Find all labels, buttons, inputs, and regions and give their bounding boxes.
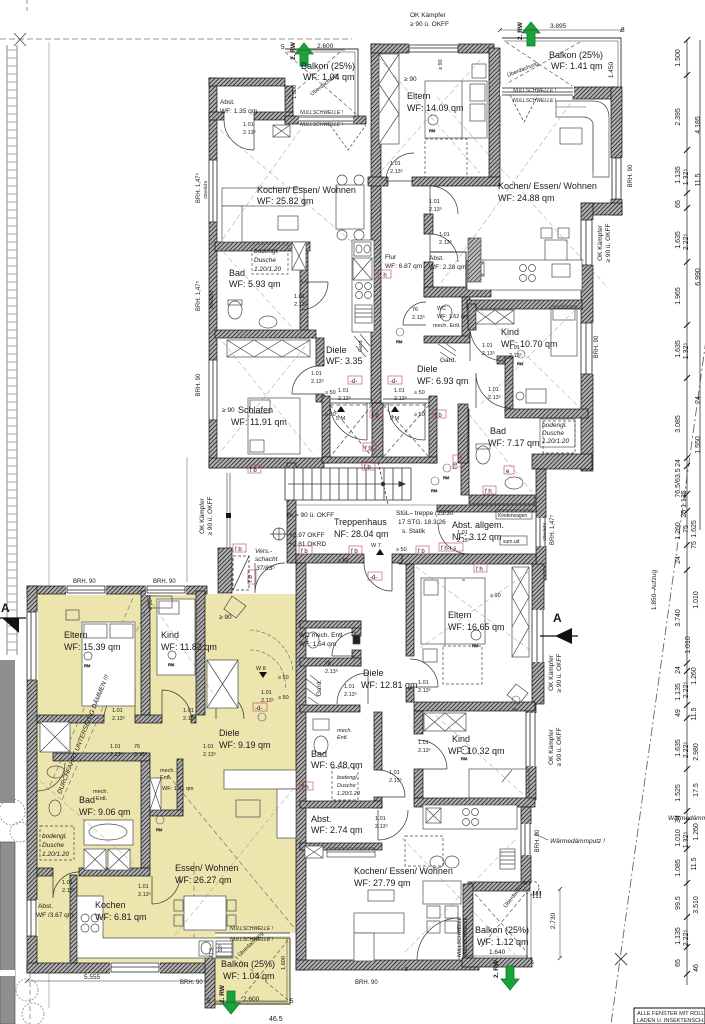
svg-text:17.5: 17.5 bbox=[693, 783, 700, 797]
svg-text:24: 24 bbox=[675, 556, 682, 564]
svg-text:2.13⁵: 2.13⁵ bbox=[418, 687, 431, 694]
svg-text:BRH. 90: BRH. 90 bbox=[594, 335, 600, 358]
svg-text:1.01: 1.01 bbox=[457, 530, 468, 536]
svg-text:WF: 2.74 qm: WF: 2.74 qm bbox=[311, 825, 363, 835]
svg-text:WF: 1.04 qm: WF: 1.04 qm bbox=[303, 72, 355, 82]
svg-text:f h: f h bbox=[476, 567, 483, 573]
svg-text:2.13⁵: 2.13⁵ bbox=[418, 747, 431, 754]
svg-text:Entl.: Entl. bbox=[337, 735, 348, 741]
svg-text:WF: 16.65 qm: WF: 16.65 qm bbox=[448, 622, 505, 632]
svg-text:WF: 6.48 qm: WF: 6.48 qm bbox=[311, 760, 363, 770]
svg-text:WF: 7.17 qm: WF: 7.17 qm bbox=[488, 438, 540, 448]
svg-text:2.13⁵: 2.13⁵ bbox=[439, 239, 452, 246]
svg-text:Br.> 90 ü. OKFF: Br.> 90 ü. OKFF bbox=[287, 512, 334, 519]
svg-text:Essen/ Wohnen: Essen/ Wohnen bbox=[175, 863, 238, 873]
svg-text:mech.: mech. bbox=[160, 768, 175, 774]
svg-text:RM: RM bbox=[168, 662, 174, 667]
svg-text:≥ 90: ≥ 90 bbox=[219, 614, 232, 621]
svg-text:5: 5 bbox=[531, 960, 534, 966]
svg-text:BRH. 90: BRH. 90 bbox=[535, 829, 541, 852]
svg-text:1.01: 1.01 bbox=[294, 294, 305, 300]
svg-text:≥ 50: ≥ 50 bbox=[325, 412, 336, 418]
svg-text:5: 5 bbox=[621, 27, 625, 34]
svg-text:24: 24 bbox=[675, 459, 682, 467]
svg-text:-d-: -d- bbox=[370, 575, 377, 581]
svg-text:WF: 6.93 qm: WF: 6.93 qm bbox=[417, 376, 469, 386]
svg-text:W 8: W 8 bbox=[256, 666, 266, 672]
svg-text:2.13⁵: 2.13⁵ bbox=[390, 168, 403, 175]
svg-text:Wärmedämmputz !: Wärmedämmputz ! bbox=[550, 838, 605, 845]
svg-text:BRH. 90: BRH. 90 bbox=[628, 164, 634, 187]
svg-text:NULLSCHWELLE !: NULLSCHWELLE ! bbox=[230, 926, 274, 932]
svg-text:Oberlicht: Oberlicht bbox=[542, 522, 547, 541]
svg-text:1.010: 1.010 bbox=[685, 636, 692, 654]
svg-text:1.01: 1.01 bbox=[488, 387, 499, 393]
svg-text:OK Kämpfer: OK Kämpfer bbox=[199, 497, 206, 534]
svg-text:1.20/1.20: 1.20/1.20 bbox=[337, 791, 361, 797]
svg-text:NULLSCHWELLE: NULLSCHWELLE bbox=[463, 916, 469, 957]
svg-text:1.01: 1.01 bbox=[390, 161, 401, 167]
svg-text:2. RW: 2. RW bbox=[290, 41, 297, 60]
svg-text:Dusche: Dusche bbox=[542, 430, 564, 437]
svg-text:Diele: Diele bbox=[219, 728, 240, 738]
svg-text:WC mech. Entl: WC mech. Entl bbox=[299, 632, 343, 639]
svg-text:RM: RM bbox=[431, 488, 437, 493]
svg-text:≥ 90: ≥ 90 bbox=[404, 76, 417, 83]
svg-text:4.185: 4.185 bbox=[695, 116, 702, 134]
svg-text:BRH. 90: BRH. 90 bbox=[73, 579, 96, 585]
svg-text:RM: RM bbox=[429, 128, 435, 133]
svg-text:76: 76 bbox=[412, 307, 418, 313]
svg-text:1.010: 1.010 bbox=[693, 591, 700, 609]
svg-text:Abst.: Abst. bbox=[38, 903, 53, 910]
svg-text:WF: 15.39 qm: WF: 15.39 qm bbox=[64, 642, 121, 652]
svg-text:24: 24 bbox=[675, 666, 682, 674]
svg-text:f b: f b bbox=[418, 549, 425, 555]
svg-text:mech.: mech. bbox=[93, 789, 108, 795]
svg-text:NULLSCHWELLE !: NULLSCHWELLE ! bbox=[513, 88, 557, 94]
svg-text:≥ 50: ≥ 50 bbox=[414, 390, 425, 396]
svg-text:1.32⁵: 1.32⁵ bbox=[683, 343, 690, 360]
svg-text:Abst.: Abst. bbox=[220, 99, 235, 106]
svg-text:Kind: Kind bbox=[501, 327, 519, 337]
svg-text:1.01: 1.01 bbox=[375, 816, 386, 822]
svg-text:≥ 90 ü. OKFF: ≥ 90 ü. OKFF bbox=[410, 21, 449, 28]
svg-text:WF: 6.81 qm: WF: 6.81 qm bbox=[95, 912, 147, 922]
svg-text:RM: RM bbox=[156, 827, 162, 832]
svg-text:1.01: 1.01 bbox=[394, 388, 405, 394]
svg-text:bodengl.: bodengl. bbox=[542, 422, 567, 429]
svg-text:2.13⁵: 2.13⁵ bbox=[338, 395, 351, 402]
svg-text:3.740: 3.740 bbox=[675, 609, 682, 627]
svg-text:f b: f b bbox=[301, 549, 308, 555]
svg-text:WF: 1.62 qm: WF: 1.62 qm bbox=[437, 314, 469, 320]
svg-text:Schlafen: Schlafen bbox=[238, 405, 273, 415]
svg-text:-d-: -d- bbox=[390, 379, 397, 385]
svg-text:BRH. 90: BRH. 90 bbox=[355, 980, 378, 986]
svg-text:1.260: 1.260 bbox=[691, 667, 698, 685]
svg-text:17 STG. 18.3/26: 17 STG. 18.3/26 bbox=[398, 519, 446, 526]
svg-text:2. RW: 2. RW bbox=[493, 959, 500, 978]
svg-text:1.085: 1.085 bbox=[675, 859, 682, 877]
svg-text:WF: 9.19 qm: WF: 9.19 qm bbox=[219, 740, 271, 750]
svg-text:Balkon (25%): Balkon (25%) bbox=[549, 50, 603, 60]
svg-text:2.13⁵: 2.13⁵ bbox=[344, 691, 357, 698]
svg-text:1.635: 1.635 bbox=[675, 340, 682, 358]
svg-text:RM: RM bbox=[472, 643, 478, 648]
svg-text:≥ 90 ü. OKFF: ≥ 90 ü. OKFF bbox=[556, 653, 563, 692]
svg-text:≥ 90 ü. OKFF: ≥ 90 ü. OKFF bbox=[556, 727, 563, 766]
svg-text:WF: 25.82 qm: WF: 25.82 qm bbox=[257, 196, 314, 206]
svg-text:1.01: 1.01 bbox=[138, 884, 149, 890]
svg-text:Kochen/ Essen/ Wohnen: Kochen/ Essen/ Wohnen bbox=[257, 185, 356, 195]
svg-text:65: 65 bbox=[675, 200, 682, 208]
svg-text:2.13⁵: 2.13⁵ bbox=[325, 668, 338, 675]
svg-text:1.625: 1.625 bbox=[691, 520, 698, 538]
svg-text:WF: 27.79 qm: WF: 27.79 qm bbox=[354, 878, 411, 888]
svg-text:≥ 90 ü. OKFF: ≥ 90 ü. OKFF bbox=[605, 223, 612, 262]
svg-text:sum.ud: sum.ud bbox=[503, 539, 520, 545]
svg-text:75: 75 bbox=[683, 525, 690, 533]
svg-text:46: 46 bbox=[693, 964, 700, 972]
svg-text:NULLSCHWELLE !: NULLSCHWELLE ! bbox=[513, 98, 557, 104]
svg-text:bodengl.: bodengl. bbox=[42, 833, 67, 840]
svg-text:Diele: Diele bbox=[363, 668, 384, 678]
svg-text:f h: f h bbox=[380, 273, 387, 279]
svg-text:ALLE FENSTER MIT ROLL: ALLE FENSTER MIT ROLL bbox=[637, 1011, 704, 1017]
svg-text:Kochen/ Essen/ Wohnen: Kochen/ Essen/ Wohnen bbox=[354, 866, 453, 876]
svg-text:1.635: 1.635 bbox=[675, 739, 682, 757]
svg-text:2.13⁵: 2.13⁵ bbox=[311, 378, 324, 385]
svg-text:1.01: 1.01 bbox=[418, 740, 429, 746]
svg-text:WF: 5.93 qm: WF: 5.93 qm bbox=[229, 279, 281, 289]
svg-text:2.13⁵: 2.13⁵ bbox=[482, 350, 495, 357]
svg-text:2.13⁵: 2.13⁵ bbox=[62, 887, 75, 894]
svg-text:Eltern: Eltern bbox=[448, 610, 472, 620]
svg-text:Treppenhaus: Treppenhaus bbox=[334, 517, 387, 527]
svg-text:!!!: !!! bbox=[532, 890, 542, 901]
svg-text:Oberlicht: Oberlicht bbox=[209, 290, 214, 309]
svg-text:1.600: 1.600 bbox=[292, 85, 298, 99]
svg-text:OK Kämpfer: OK Kämpfer bbox=[410, 12, 447, 19]
svg-text:StüL– treppe (25/30: StüL– treppe (25/30 bbox=[396, 510, 454, 517]
svg-text:1.135: 1.135 bbox=[675, 927, 682, 945]
svg-text:OK Kämpfer: OK Kämpfer bbox=[548, 728, 555, 765]
svg-text:WF: 12.81 qm: WF: 12.81 qm bbox=[361, 680, 418, 690]
svg-text:≥ 50: ≥ 50 bbox=[278, 675, 289, 681]
svg-text:Kochen: Kochen bbox=[95, 900, 126, 910]
svg-text:3.510: 3.510 bbox=[693, 896, 700, 914]
svg-text:Abst.: Abst. bbox=[429, 255, 444, 262]
svg-text:1.20/1.20: 1.20/1.20 bbox=[542, 438, 569, 445]
svg-text:Dusche: Dusche bbox=[254, 257, 276, 264]
svg-text:NF: 28.04 qm: NF: 28.04 qm bbox=[334, 529, 389, 539]
svg-text:WC: WC bbox=[437, 306, 446, 312]
svg-text:1.525: 1.525 bbox=[675, 784, 682, 802]
svg-text:Oberlicht: Oberlicht bbox=[203, 180, 208, 199]
svg-text:2.13⁵: 2.13⁵ bbox=[394, 395, 407, 402]
svg-text:2.22⁵: 2.22⁵ bbox=[683, 682, 690, 699]
svg-text:2.13⁵: 2.13⁵ bbox=[183, 715, 196, 722]
svg-text:49: 49 bbox=[675, 709, 682, 717]
svg-text:Bad: Bad bbox=[311, 749, 327, 759]
svg-text:-d-: -d- bbox=[255, 706, 262, 712]
svg-text:65: 65 bbox=[675, 959, 682, 967]
svg-text:OK Kämpfer: OK Kämpfer bbox=[548, 654, 555, 691]
svg-text:f b: f b bbox=[250, 468, 257, 474]
svg-text:1.01: 1.01 bbox=[243, 122, 254, 128]
svg-text:1.500: 1.500 bbox=[675, 49, 682, 67]
svg-text:RM: RM bbox=[517, 361, 523, 366]
svg-text:1.32⁵: 1.32⁵ bbox=[683, 169, 690, 186]
svg-text:NULLSCHWELLE !: NULLSCHWELLE ! bbox=[300, 122, 344, 128]
svg-text:5: 5 bbox=[290, 998, 294, 1005]
svg-text:≥ 90: ≥ 90 bbox=[438, 59, 444, 70]
svg-text:2.13⁵: 2.13⁵ bbox=[134, 751, 147, 758]
svg-text:2.22⁵: 2.22⁵ bbox=[683, 742, 690, 759]
svg-text:≥ 50: ≥ 50 bbox=[338, 558, 349, 564]
svg-text:-d-: -d- bbox=[350, 379, 357, 385]
svg-text:6.990: 6.990 bbox=[695, 268, 702, 286]
svg-text:2.13⁵: 2.13⁵ bbox=[112, 715, 125, 722]
svg-text:9 M: 9 M bbox=[390, 416, 400, 422]
svg-text:≈: ≈ bbox=[462, 578, 465, 584]
svg-text:A: A bbox=[553, 611, 562, 625]
svg-text:1.01: 1.01 bbox=[482, 343, 493, 349]
svg-text:f b: f b bbox=[372, 413, 379, 419]
svg-text:Diele: Diele bbox=[326, 345, 347, 355]
svg-text:Abst.: Abst. bbox=[311, 814, 332, 824]
svg-text:2.13⁵: 2.13⁵ bbox=[412, 314, 425, 321]
svg-text:Balkon (25%): Balkon (25%) bbox=[475, 925, 529, 935]
svg-text:Entl.: Entl. bbox=[160, 775, 171, 781]
svg-text:Dusche: Dusche bbox=[42, 842, 64, 849]
svg-text:25 1.135: 25 1.135 bbox=[681, 490, 688, 517]
svg-text:5 M: 5 M bbox=[336, 416, 346, 422]
svg-text:11.5: 11.5 bbox=[691, 857, 698, 870]
svg-text:BRH. 90: BRH. 90 bbox=[153, 579, 176, 585]
svg-text:2.13⁵: 2.13⁵ bbox=[429, 206, 442, 213]
svg-text:5.555: 5.555 bbox=[84, 974, 101, 981]
svg-text:1.550: 1.550 bbox=[695, 436, 702, 454]
svg-text:WF: 1.04 qm: WF: 1.04 qm bbox=[223, 971, 275, 981]
svg-text:W 7: W 7 bbox=[371, 543, 381, 549]
svg-text:11.5: 11.5 bbox=[691, 707, 698, 720]
svg-text:76: 76 bbox=[134, 744, 140, 750]
svg-text:1.135: 1.135 bbox=[675, 166, 682, 184]
svg-text:f h-r s: f h-r s bbox=[441, 546, 456, 552]
svg-text:f b: f b bbox=[351, 549, 358, 555]
svg-text:Kind: Kind bbox=[452, 734, 470, 744]
svg-text:Eltern: Eltern bbox=[407, 91, 431, 101]
svg-text:2.13⁵: 2.13⁵ bbox=[110, 751, 123, 758]
svg-text:+2.81 OKRD: +2.81 OKRD bbox=[289, 541, 326, 548]
svg-text:1.01: 1.01 bbox=[418, 680, 429, 686]
svg-text:≥ 90: ≥ 90 bbox=[222, 407, 235, 414]
svg-text:2. RW: 2. RW bbox=[219, 984, 226, 1003]
svg-text:Bad: Bad bbox=[79, 795, 95, 805]
svg-text:Diele: Diele bbox=[417, 364, 438, 374]
svg-text:WF: 1.41 qm: WF: 1.41 qm bbox=[551, 61, 603, 71]
svg-text:2.13⁵: 2.13⁵ bbox=[389, 777, 402, 784]
svg-text:f b: f b bbox=[248, 575, 254, 582]
svg-text:Balkon (25%): Balkon (25%) bbox=[301, 61, 355, 71]
svg-text:Gard.: Gard. bbox=[358, 339, 364, 352]
svg-text:BRH. 1,47⁵: BRH. 1,47⁵ bbox=[195, 172, 202, 203]
svg-text:5: 5 bbox=[405, 967, 408, 973]
svg-text:1.635: 1.635 bbox=[675, 231, 682, 249]
svg-text:1.260: 1.260 bbox=[675, 522, 682, 540]
svg-text:1.01: 1.01 bbox=[338, 388, 349, 394]
svg-text:f b: f b bbox=[365, 446, 372, 452]
svg-text:f h: f h bbox=[302, 785, 309, 791]
svg-text:WF: 10.32 qm: WF: 10.32 qm bbox=[448, 746, 505, 756]
svg-text:5: 5 bbox=[281, 44, 285, 51]
svg-text:WF: 1.54 qm: WF: 1.54 qm bbox=[299, 641, 336, 648]
svg-text:≥ 50: ≥ 50 bbox=[325, 390, 336, 396]
svg-text:WF /3.67 qm: WF /3.67 qm bbox=[36, 912, 73, 919]
svg-text:1.640: 1.640 bbox=[489, 949, 506, 956]
svg-text:NULLSCHWELLE !: NULLSCHWELLE ! bbox=[300, 110, 344, 116]
svg-text:2.13⁵: 2.13⁵ bbox=[203, 751, 216, 758]
svg-text:1.135: 1.135 bbox=[675, 683, 682, 701]
svg-text:RM: RM bbox=[443, 475, 449, 480]
svg-text:2.13⁵: 2.13⁵ bbox=[138, 891, 151, 898]
svg-text:WF: 14.09 qm: WF: 14.09 qm bbox=[407, 103, 464, 113]
svg-text:Flur: Flur bbox=[385, 254, 397, 261]
svg-text:1.20/1.20: 1.20/1.20 bbox=[254, 266, 281, 273]
svg-text:2.13⁵: 2.13⁵ bbox=[243, 129, 256, 136]
svg-text:71.5: 71.5 bbox=[209, 948, 215, 959]
svg-text:1.01: 1.01 bbox=[110, 744, 121, 750]
svg-text:46.5: 46.5 bbox=[269, 1016, 283, 1023]
svg-text:1.01: 1.01 bbox=[429, 199, 440, 205]
svg-text:2.22⁵: 2.22⁵ bbox=[683, 930, 690, 947]
svg-text:1.20/1.20: 1.20/1.20 bbox=[42, 851, 69, 858]
svg-text:≥ 90: ≥ 90 bbox=[490, 593, 501, 599]
svg-text:≥ 50: ≥ 50 bbox=[414, 412, 425, 418]
svg-text:99.5: 99.5 bbox=[675, 896, 682, 910]
svg-text:Gard.: Gard. bbox=[440, 357, 456, 364]
svg-text:Abst. allgem.: Abst. allgem. bbox=[452, 520, 504, 530]
svg-text:37/83⁵: 37/83⁵ bbox=[256, 565, 275, 572]
svg-text:Wärmedämmputz !: Wärmedämmputz ! bbox=[668, 815, 705, 822]
svg-text:WF: 1.41 qm: WF: 1.41 qm bbox=[162, 786, 194, 792]
svg-text:schacht: schacht bbox=[255, 556, 279, 563]
svg-text:WF: 11.82 qm: WF: 11.82 qm bbox=[161, 642, 217, 652]
svg-text:Bad: Bad bbox=[490, 426, 506, 436]
svg-text:Balkon (25%): Balkon (25%) bbox=[221, 959, 275, 969]
svg-text:bodengl.: bodengl. bbox=[254, 248, 279, 255]
svg-text:1.965: 1.965 bbox=[675, 287, 682, 305]
svg-text:RM: RM bbox=[396, 339, 402, 344]
svg-text:≥ 50: ≥ 50 bbox=[278, 695, 289, 701]
svg-text:BRH. 90: BRH. 90 bbox=[196, 373, 202, 396]
svg-text:RM: RM bbox=[461, 756, 467, 761]
svg-text:≥ 90 ü. OKFF: ≥ 90 ü. OKFF bbox=[207, 496, 214, 535]
svg-text:f b: f b bbox=[453, 462, 459, 469]
svg-text:bodengl.: bodengl. bbox=[337, 775, 358, 781]
svg-text:WF: 6.87 qm: WF: 6.87 qm bbox=[385, 263, 422, 270]
svg-text:5: 5 bbox=[207, 998, 211, 1005]
svg-text:s. Statik: s. Statik bbox=[402, 528, 426, 535]
svg-text:WF: 2.28 qm: WF: 2.28 qm bbox=[429, 264, 466, 271]
svg-text:LADEN U. INSEKTENSCH.: LADEN U. INSEKTENSCH. bbox=[637, 1018, 705, 1024]
svg-text:2.980: 2.980 bbox=[693, 743, 700, 761]
svg-text:1.01: 1.01 bbox=[261, 690, 272, 696]
svg-text:1.01: 1.01 bbox=[389, 770, 400, 776]
svg-text:Entl.: Entl. bbox=[96, 796, 107, 802]
svg-text:f h: f h bbox=[485, 489, 492, 495]
svg-text:32⁵: 32⁵ bbox=[217, 944, 224, 952]
svg-text:f b: f b bbox=[235, 547, 242, 553]
svg-text:RM: RM bbox=[512, 707, 518, 712]
svg-text:1.32⁵: 1.32⁵ bbox=[683, 832, 690, 849]
svg-text:WF: 11.91 qm: WF: 11.91 qm bbox=[231, 417, 287, 427]
svg-text:≥ 50: ≥ 50 bbox=[396, 547, 407, 553]
svg-text:2.395: 2.395 bbox=[675, 108, 682, 126]
svg-text:f b: f b bbox=[364, 465, 371, 471]
svg-text:WF: 24.88 qm: WF: 24.88 qm bbox=[498, 193, 555, 203]
svg-text:3.895: 3.895 bbox=[550, 23, 567, 30]
svg-text:1.01: 1.01 bbox=[439, 232, 450, 238]
svg-text:1.260: 1.260 bbox=[693, 823, 700, 841]
svg-text:2.730: 2.730 bbox=[550, 912, 557, 929]
svg-text:1.450: 1.450 bbox=[608, 61, 615, 78]
svg-text:2.13⁵: 2.13⁵ bbox=[375, 823, 388, 830]
svg-text:Kochen/ Essen/ Wohnen: Kochen/ Essen/ Wohnen bbox=[498, 181, 597, 191]
svg-text:1.850–Aufzug: 1.850–Aufzug bbox=[651, 570, 658, 611]
svg-text:2.22⁵: 2.22⁵ bbox=[683, 234, 690, 251]
svg-text:WF: 3.35: WF: 3.35 bbox=[326, 356, 363, 366]
svg-text:1.01: 1.01 bbox=[62, 880, 73, 886]
svg-text:1.01: 1.01 bbox=[344, 684, 355, 690]
svg-text:BRH. 1,47⁵: BRH. 1,47⁵ bbox=[549, 514, 556, 545]
svg-text:1.01: 1.01 bbox=[509, 345, 520, 351]
svg-text:2.13⁵: 2.13⁵ bbox=[294, 301, 307, 308]
svg-text:2. RW: 2. RW bbox=[517, 21, 524, 40]
svg-text:RM: RM bbox=[84, 663, 90, 668]
svg-text:1.01: 1.01 bbox=[311, 371, 322, 377]
svg-text:1.010: 1.010 bbox=[675, 829, 682, 847]
svg-text:+2.97 OKFF: +2.97 OKFF bbox=[289, 532, 325, 539]
svg-text:mech. Entl.: mech. Entl. bbox=[433, 323, 461, 329]
svg-text:1.01: 1.01 bbox=[183, 708, 194, 714]
svg-text:1.01: 1.01 bbox=[112, 708, 123, 714]
svg-text:mech.: mech. bbox=[337, 728, 352, 734]
svg-text:75: 75 bbox=[691, 541, 698, 549]
svg-text:WF: 1.35 qm: WF: 1.35 qm bbox=[220, 108, 257, 115]
svg-text:76: 76 bbox=[325, 661, 331, 667]
svg-text:24: 24 bbox=[695, 396, 702, 404]
svg-text:f b: f b bbox=[435, 413, 442, 419]
svg-text:11.5: 11.5 bbox=[695, 173, 702, 186]
svg-text:BRH. 1,47⁵: BRH. 1,47⁵ bbox=[195, 280, 202, 311]
svg-text:Kinderwagen: Kinderwagen bbox=[498, 513, 527, 519]
svg-text:Eltern: Eltern bbox=[64, 630, 88, 640]
svg-text:OK Kämpfer: OK Kämpfer bbox=[597, 224, 604, 261]
svg-text:Dusche: Dusche bbox=[337, 783, 356, 789]
svg-text:Gard.: Gard. bbox=[316, 680, 323, 696]
svg-text:3.085: 3.085 bbox=[675, 415, 682, 433]
svg-text:WF: 9.06 qm: WF: 9.06 qm bbox=[79, 807, 131, 817]
svg-text:A: A bbox=[1, 601, 10, 615]
svg-text:Vers.-: Vers.- bbox=[255, 548, 273, 555]
svg-text:1.600: 1.600 bbox=[281, 956, 287, 970]
svg-text:2.600: 2.600 bbox=[317, 43, 334, 50]
svg-text:1.01: 1.01 bbox=[203, 744, 214, 750]
svg-text:WF: 26.27 qm: WF: 26.27 qm bbox=[175, 875, 232, 885]
